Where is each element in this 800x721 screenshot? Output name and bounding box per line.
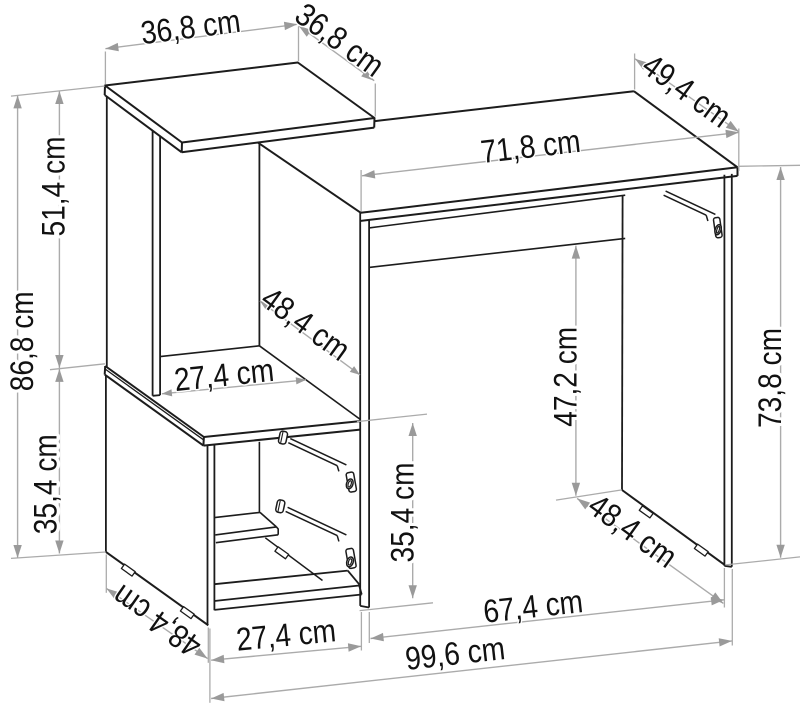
svg-text:86,8 cm: 86,8 cm xyxy=(4,291,40,391)
svg-text:73,8 cm: 73,8 cm xyxy=(752,328,788,428)
svg-text:47,2 cm: 47,2 cm xyxy=(548,327,584,427)
svg-text:51,4 cm: 51,4 cm xyxy=(35,137,71,237)
svg-text:35,4 cm: 35,4 cm xyxy=(385,463,421,563)
svg-text:35,4 cm: 35,4 cm xyxy=(28,434,64,534)
